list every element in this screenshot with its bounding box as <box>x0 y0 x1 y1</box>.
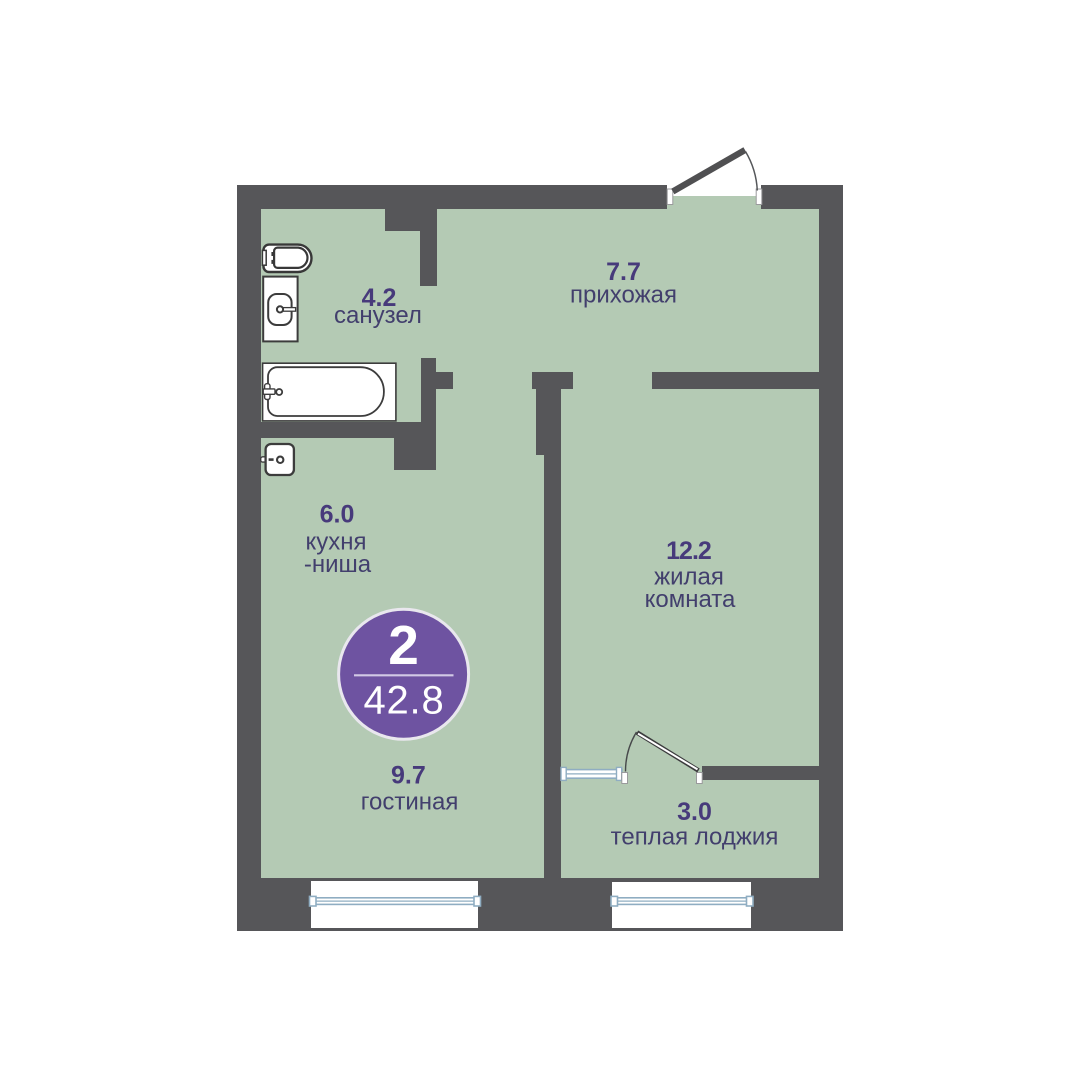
svg-text:прихожая: прихожая <box>570 282 677 309</box>
svg-text:3.0: 3.0 <box>677 798 712 826</box>
svg-text:комната: комната <box>645 586 736 613</box>
svg-text:-ниша: -ниша <box>304 551 372 578</box>
svg-text:12.2: 12.2 <box>666 537 711 565</box>
svg-text:6.0: 6.0 <box>320 501 355 529</box>
svg-text:санузел: санузел <box>334 302 422 329</box>
svg-text:2: 2 <box>388 614 419 676</box>
svg-text:42.8: 42.8 <box>363 679 444 723</box>
svg-text:теплая лоджия: теплая лоджия <box>611 823 779 850</box>
svg-text:гостиная: гостиная <box>361 788 459 815</box>
svg-text:9.7: 9.7 <box>391 762 426 790</box>
